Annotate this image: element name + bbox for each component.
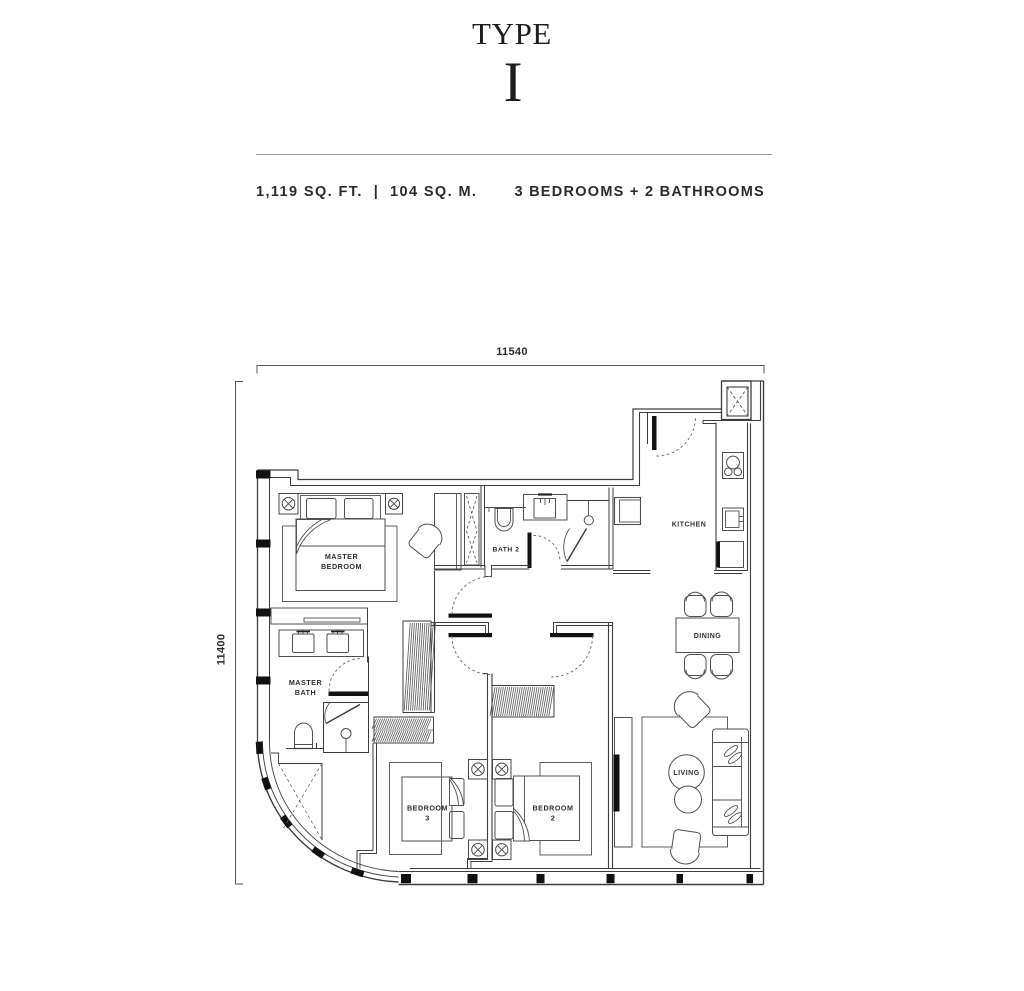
svg-text:11540: 11540 <box>496 346 527 358</box>
svg-text:BATH: BATH <box>295 688 316 697</box>
svg-text:11400: 11400 <box>216 634 228 665</box>
svg-text:2: 2 <box>551 814 556 823</box>
svg-text:DINING: DINING <box>694 633 722 640</box>
svg-text:MASTER: MASTER <box>289 678 323 687</box>
svg-text:I: I <box>504 51 523 114</box>
svg-text:LIVING: LIVING <box>673 770 699 777</box>
svg-text:KITCHEN: KITCHEN <box>672 522 707 529</box>
svg-text:BATH 2: BATH 2 <box>492 547 519 554</box>
svg-text:1,119 SQ. FT. | 104 SQ. M.: 1,119 SQ. FT. | 104 SQ. M. <box>256 184 477 200</box>
svg-text:3: 3 <box>425 814 430 823</box>
svg-text:BEDROOM: BEDROOM <box>532 804 573 813</box>
svg-text:3 BEDROOMS + 2 BATHROOMS: 3 BEDROOMS + 2 BATHROOMS <box>514 184 765 200</box>
svg-text:TYPE: TYPE <box>472 16 552 51</box>
svg-text:BEDROOM: BEDROOM <box>407 804 448 813</box>
svg-text:BEDROOM: BEDROOM <box>321 562 362 571</box>
svg-text:MASTER: MASTER <box>325 552 359 561</box>
